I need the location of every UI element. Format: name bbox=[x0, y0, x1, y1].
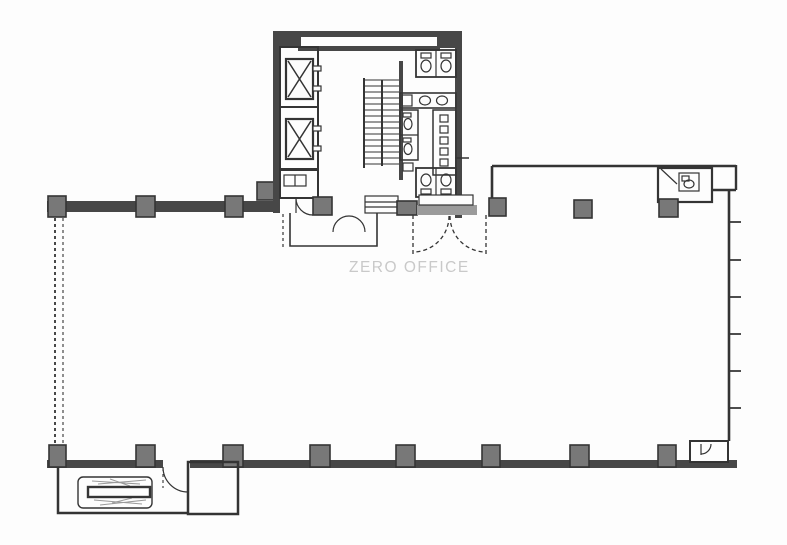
entrance-vestibule-1 bbox=[283, 213, 377, 250]
left-wing bbox=[47, 182, 737, 468]
column bbox=[48, 196, 66, 217]
door-icon bbox=[296, 198, 313, 215]
entrance-vestibule-2 bbox=[413, 215, 486, 255]
double-door-icon bbox=[413, 216, 486, 252]
column bbox=[310, 445, 330, 467]
watermark-text: ZERO OFFICE bbox=[349, 259, 470, 276]
door-icon bbox=[661, 169, 677, 184]
floor-plan-page: ZERO OFFICE bbox=[0, 0, 787, 545]
column bbox=[396, 445, 415, 467]
duct bbox=[440, 148, 448, 155]
elevator-x bbox=[288, 61, 311, 97]
elevator-door bbox=[313, 86, 321, 91]
annex-room-wall bbox=[188, 462, 238, 514]
column bbox=[489, 198, 506, 216]
duct bbox=[440, 137, 448, 144]
column bbox=[482, 445, 500, 467]
escalator-belt bbox=[88, 487, 150, 497]
column bbox=[570, 445, 589, 467]
duct-shaft bbox=[433, 110, 456, 175]
cistern bbox=[441, 53, 451, 58]
landing-lines bbox=[365, 202, 398, 207]
door-icon bbox=[163, 467, 188, 492]
bottom-wall bbox=[190, 460, 737, 468]
column bbox=[313, 197, 332, 215]
column bbox=[225, 196, 243, 217]
column bbox=[275, 31, 301, 48]
cistern bbox=[421, 189, 431, 194]
cistern bbox=[441, 189, 451, 194]
wall-segment bbox=[417, 205, 477, 215]
toilet-icon bbox=[404, 119, 412, 130]
duct bbox=[440, 115, 448, 122]
sink-icon bbox=[420, 96, 431, 105]
column bbox=[437, 31, 462, 48]
elevator-2 bbox=[280, 107, 321, 169]
closet-wall bbox=[690, 441, 728, 462]
sink-icon bbox=[437, 96, 448, 105]
machine-room-annex bbox=[58, 462, 238, 514]
toilet-icon bbox=[441, 60, 451, 72]
cistern bbox=[403, 138, 411, 142]
duct bbox=[440, 126, 448, 133]
column bbox=[136, 196, 155, 217]
slop-sink bbox=[403, 163, 413, 171]
wc-room bbox=[658, 168, 712, 217]
staircase bbox=[364, 61, 403, 213]
elevator-x bbox=[288, 121, 311, 157]
washrooms bbox=[400, 50, 456, 197]
core-north-wall bbox=[273, 31, 462, 37]
elevator-door bbox=[313, 126, 321, 131]
column bbox=[574, 200, 592, 218]
right-wing bbox=[489, 165, 741, 462]
toilet-icon bbox=[421, 60, 431, 72]
double-door-icon bbox=[333, 216, 365, 232]
cistern bbox=[403, 113, 411, 117]
column bbox=[136, 445, 155, 467]
toilet-icon bbox=[441, 174, 451, 186]
toilet-icon bbox=[421, 174, 431, 186]
mullion-ticks-icon bbox=[729, 222, 741, 408]
column bbox=[397, 201, 417, 215]
stair-landing bbox=[365, 196, 398, 213]
closet-wall bbox=[280, 170, 318, 198]
vestibule-edge bbox=[413, 215, 486, 255]
utility-closet bbox=[690, 441, 728, 462]
column bbox=[49, 445, 66, 467]
toilet-icon bbox=[404, 144, 412, 155]
elevator-door bbox=[313, 66, 321, 71]
elevator-door bbox=[313, 146, 321, 151]
elevator-core bbox=[273, 31, 486, 255]
opening bbox=[419, 195, 473, 205]
column bbox=[223, 445, 243, 467]
elevator-1 bbox=[280, 47, 321, 107]
core-west-wall bbox=[273, 33, 280, 213]
corner-wall bbox=[712, 165, 736, 190]
duct bbox=[440, 159, 448, 166]
column bbox=[659, 199, 678, 217]
counter-cabinet bbox=[402, 95, 412, 106]
column bbox=[658, 445, 676, 467]
floor-plan-canvas: ZERO OFFICE bbox=[0, 0, 787, 545]
cistern bbox=[421, 53, 431, 58]
